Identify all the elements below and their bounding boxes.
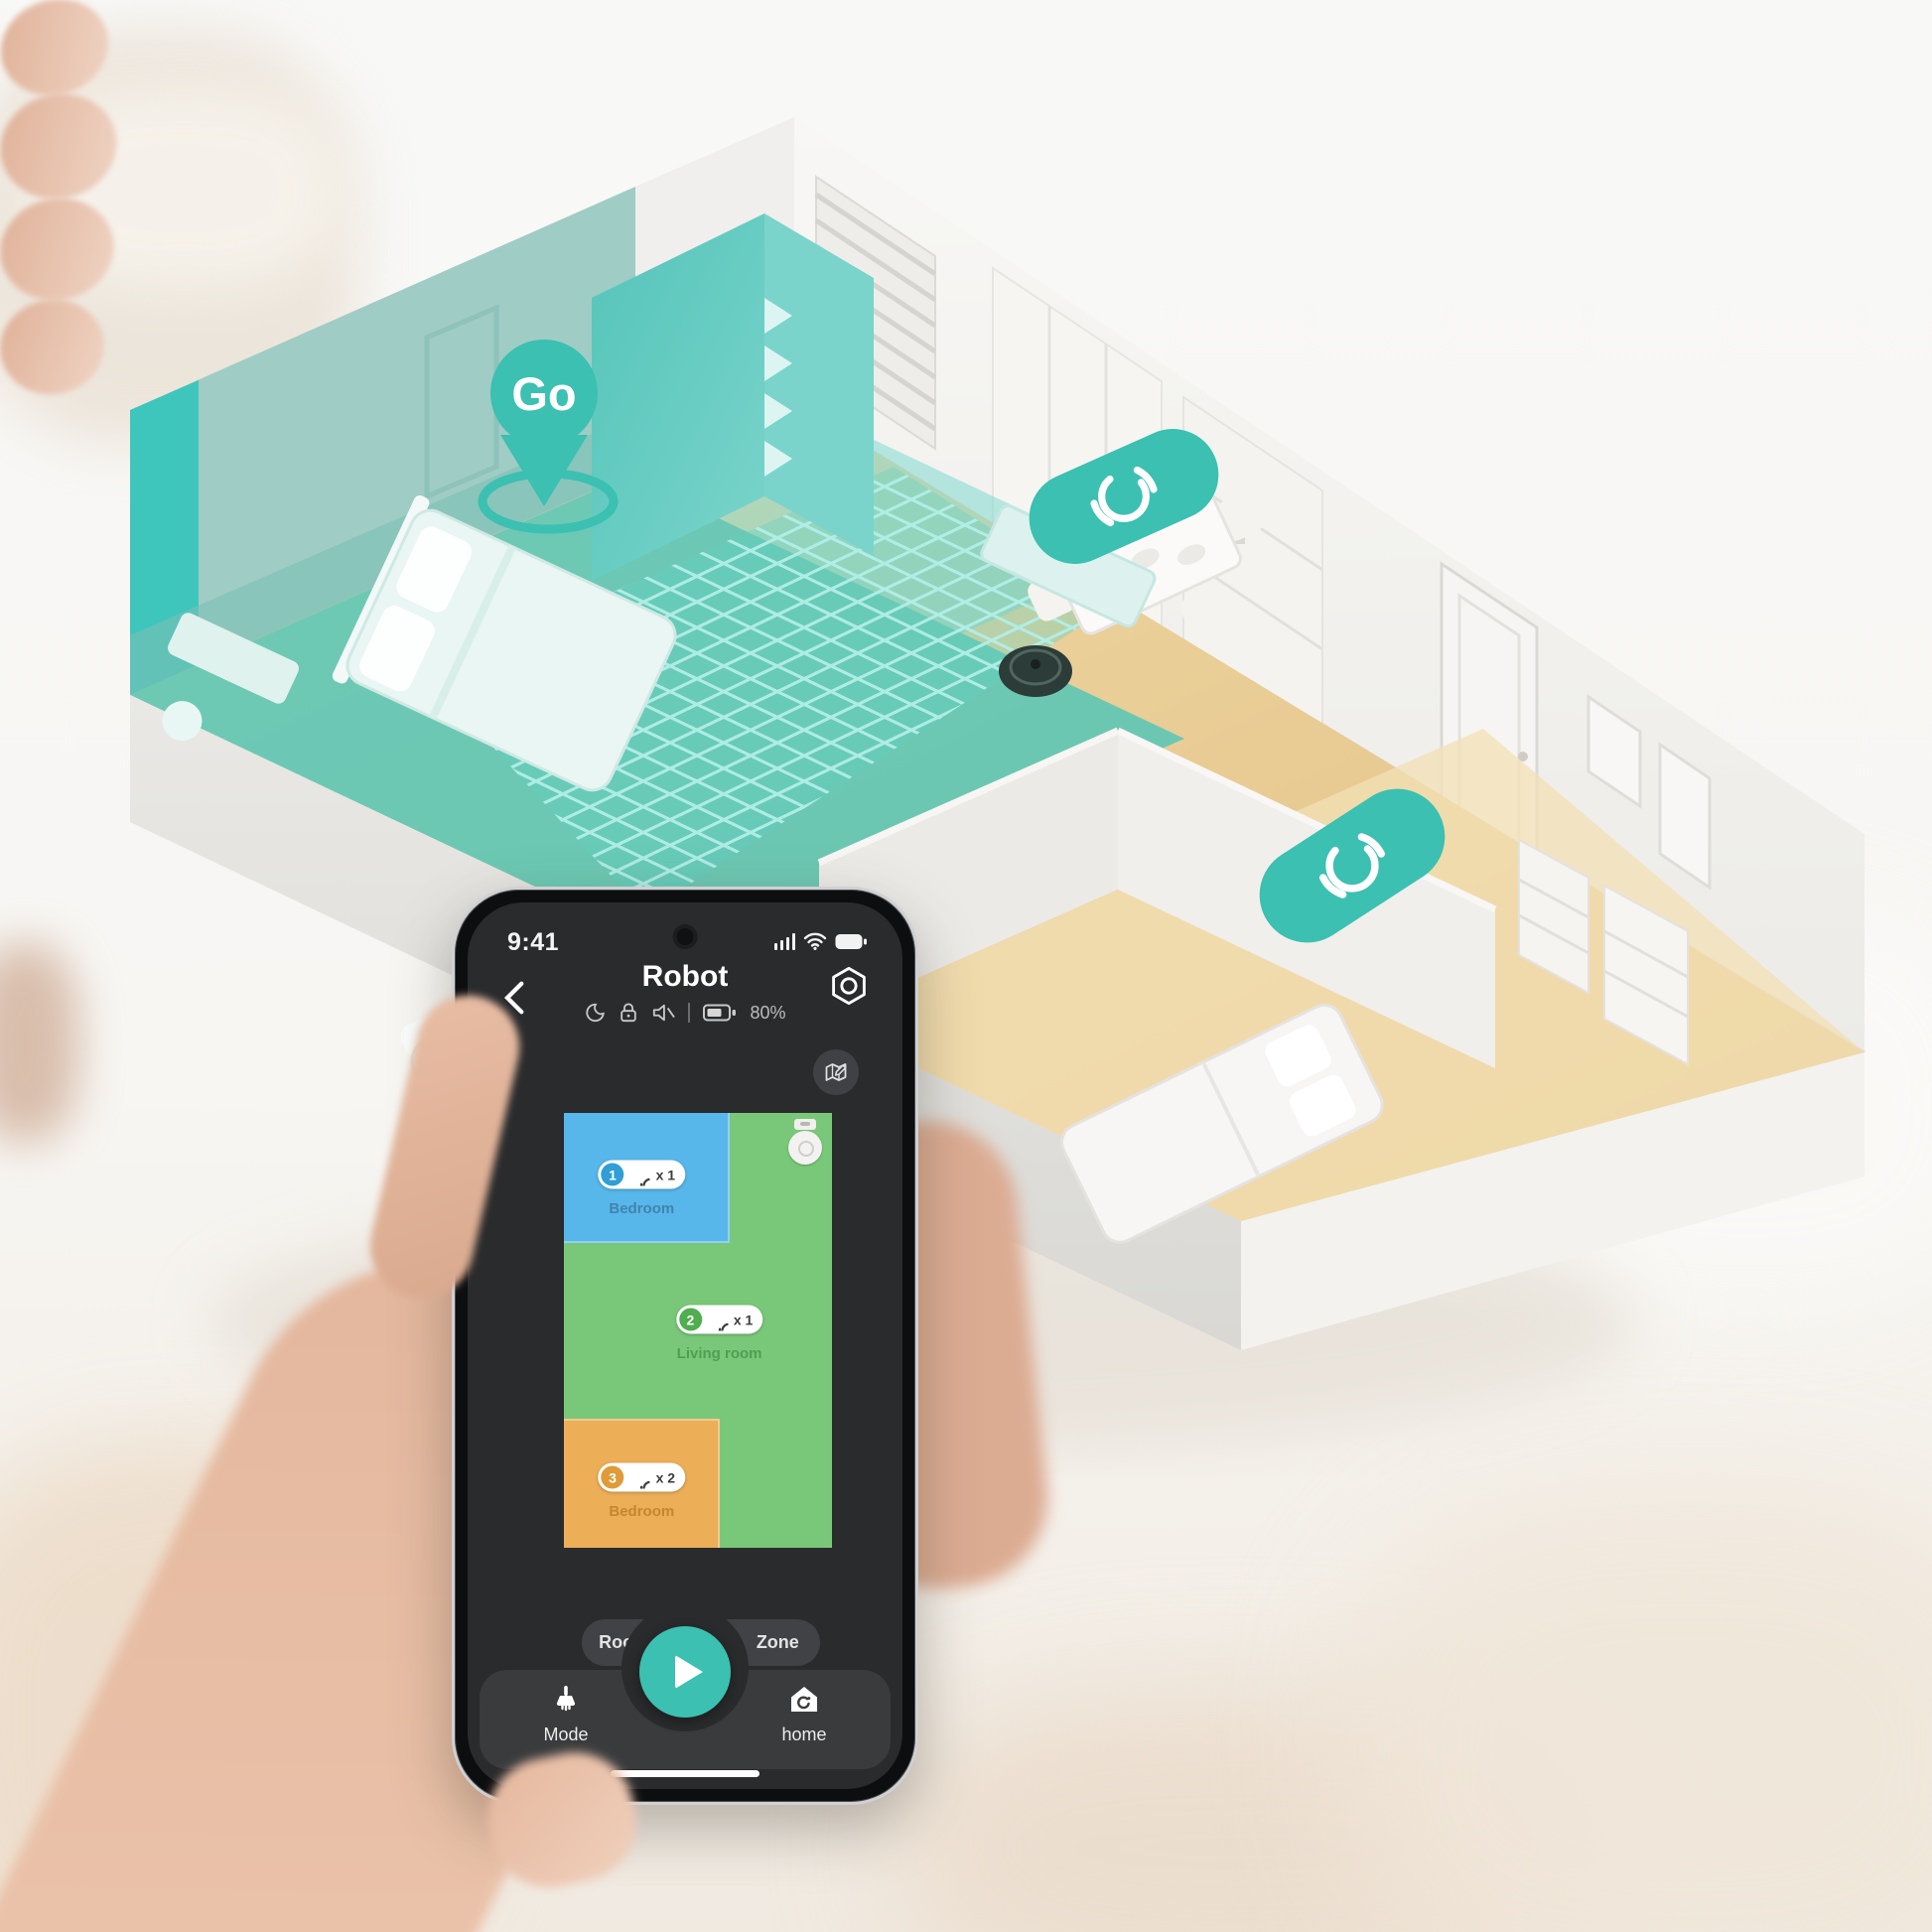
child-lock-icon <box>619 1002 638 1024</box>
clean-count-icon <box>629 1164 651 1185</box>
room-number-badge: 2 <box>679 1309 702 1331</box>
signal-icon <box>774 933 796 950</box>
play-icon <box>675 1655 703 1689</box>
status-bar: 9:41 <box>468 902 902 966</box>
room-label: Bedroom <box>609 1200 674 1217</box>
clean-times: x 1 <box>734 1311 753 1327</box>
clean-count-icon <box>707 1309 729 1330</box>
device-status-row: 80% <box>468 1002 902 1024</box>
mode-button[interactable]: Mode <box>521 1684 611 1745</box>
tab-zone[interactable]: Zone <box>740 1625 816 1660</box>
status-time: 9:41 <box>507 928 559 957</box>
room-label: Bedroom <box>609 1503 674 1520</box>
smartphone: 9:41 Robot <box>452 887 918 1805</box>
broom-icon <box>550 1684 582 1716</box>
night-mode-icon <box>584 1002 606 1024</box>
start-cleaning-button[interactable] <box>639 1626 731 1718</box>
room-label: Living room <box>677 1345 762 1362</box>
home-label: home <box>759 1725 849 1745</box>
cleaning-map[interactable]: 1 x 1 Bedroom 2 x 1 Living room 3 x 2 Be… <box>564 1113 832 1548</box>
room-pill-bedroom-1[interactable]: 1 x 1 <box>599 1161 685 1189</box>
wifi-icon <box>803 932 827 950</box>
robot-position-icon <box>788 1131 822 1165</box>
battery-percent: 80% <box>750 1003 785 1024</box>
room-pill-bedroom-3[interactable]: 3 x 2 <box>599 1463 685 1492</box>
stage: Go 9:41 <box>0 0 1932 1932</box>
clean-times: x 1 <box>656 1167 675 1182</box>
room-pill-living[interactable]: 2 x 1 <box>676 1306 762 1334</box>
edit-map-button[interactable] <box>813 1049 859 1095</box>
robot-vacuum <box>999 645 1072 697</box>
phone-screen: 9:41 Robot <box>468 902 902 1789</box>
clean-count-icon <box>629 1466 651 1488</box>
room-number-badge: 1 <box>602 1164 624 1186</box>
device-battery-icon <box>703 1003 737 1023</box>
dock-station-icon <box>794 1119 816 1130</box>
mode-label: Mode <box>521 1725 611 1745</box>
room-number-badge: 3 <box>602 1466 624 1489</box>
camera-punch-hole <box>677 928 694 945</box>
home-button[interactable]: home <box>759 1684 849 1745</box>
mute-icon <box>651 1002 675 1024</box>
edit-map-icon <box>823 1059 849 1085</box>
clean-times: x 2 <box>656 1469 675 1485</box>
home-indicator[interactable] <box>611 1770 759 1777</box>
go-pin-label: Go <box>511 367 576 420</box>
home-dock-icon <box>787 1684 821 1716</box>
battery-icon <box>835 933 867 950</box>
